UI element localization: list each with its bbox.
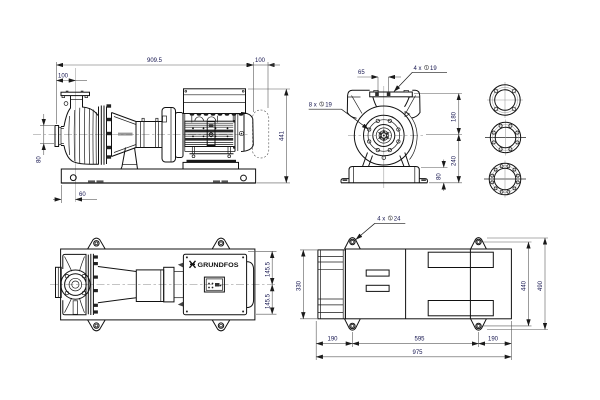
svg-text:GRUNDFOS: GRUNDFOS [198,262,240,269]
svg-text:190: 190 [488,337,499,343]
svg-text:60: 60 [79,192,86,198]
svg-text:975: 975 [413,350,424,356]
svg-text:909.5: 909.5 [147,58,163,64]
svg-text:8 x: 8 x [309,103,317,109]
svg-text:24: 24 [394,217,401,223]
svg-text:330: 330 [297,280,303,291]
svg-text:100: 100 [58,74,69,80]
svg-text:4 x: 4 x [377,217,385,223]
svg-text:180: 180 [452,111,458,122]
svg-text:100: 100 [255,58,266,64]
svg-text:190: 190 [328,337,339,343]
svg-text:19: 19 [325,103,332,109]
svg-text:145.5: 145.5 [265,293,271,309]
svg-text:80: 80 [437,173,443,180]
svg-text:65: 65 [358,70,365,76]
svg-text:595: 595 [415,337,426,343]
svg-text:4 x: 4 x [414,66,422,72]
svg-text:145.5: 145.5 [265,261,271,277]
svg-text:240: 240 [452,155,458,166]
svg-text:19: 19 [430,66,437,72]
svg-text:441: 441 [280,130,286,141]
svg-text:80: 80 [37,156,43,163]
svg-text:490: 490 [538,280,544,291]
svg-text:440: 440 [521,280,527,291]
